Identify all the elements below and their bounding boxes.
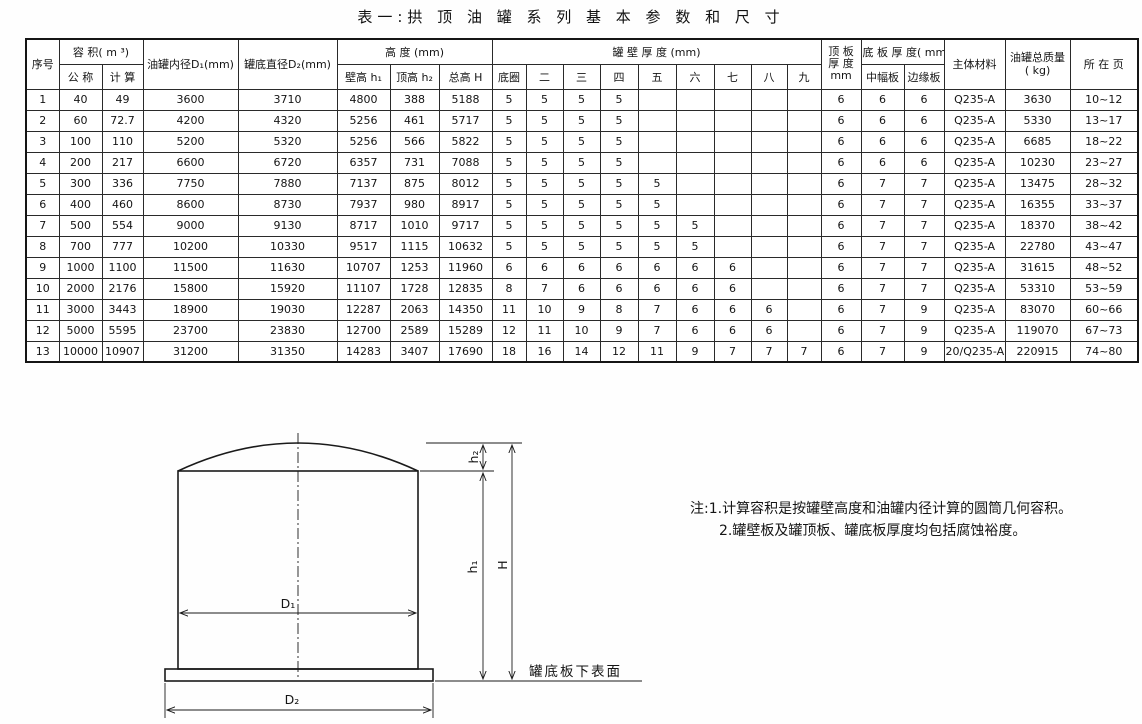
table-cell: Q235-A [944,236,1005,257]
h-total-label: H [495,560,510,569]
table-cell: 7880 [238,173,337,194]
table-cell [714,215,751,236]
table-cell: 10907 [102,341,143,362]
table-cell [787,215,821,236]
table-cell [638,152,676,173]
table-cell: 5 [492,131,526,152]
table-cell: 8 [492,278,526,299]
table-cell: 5 [600,173,638,194]
table-cell: 5 [492,215,526,236]
table-row: 1020002176158001592011107172812835876666… [26,278,1138,299]
table-cell: 5 [526,236,563,257]
table-cell [714,131,751,152]
table-cell: 3000 [59,299,102,320]
table-title: 表一:拱 顶 油 罐 系 列 基 本 参 数 和 尺 寸 [0,6,1142,27]
table-cell: Q235-A [944,320,1005,341]
table-cell: 7 [638,320,676,341]
table-cell [676,152,714,173]
parameters-table: 序号 容 积( m ³) 油罐内径D₁(mm) 罐底直径D₂(mm) 高 度 (… [25,38,1139,363]
table-cell: 9 [904,341,944,362]
table-cell: 40 [59,89,102,110]
table-cell: 7937 [337,194,390,215]
table-cell: 60~66 [1070,299,1138,320]
table-cell: 5 [563,110,600,131]
table-cell: 8730 [238,194,337,215]
document-page: 表一:拱 顶 油 罐 系 列 基 本 参 数 和 尺 寸 序号 容 积( m ³… [0,0,1142,724]
col-header-course-7: 七 [714,64,751,89]
table-cell: 5 [492,194,526,215]
table-header: 序号 容 积( m ³) 油罐内径D₁(mm) 罐底直径D₂(mm) 高 度 (… [26,39,1138,89]
table-cell: 875 [390,173,439,194]
table-cell: 11107 [337,278,390,299]
table-cell [787,152,821,173]
table-cell: 53310 [1005,278,1070,299]
table-cell: 5 [526,173,563,194]
table-cell: 1000 [59,257,102,278]
h1-label: h₁ [465,561,480,574]
table-cell: 5200 [143,131,238,152]
table-cell [787,194,821,215]
table-cell: 5 [526,89,563,110]
table-cell: 6 [26,194,59,215]
table-cell: 13475 [1005,173,1070,194]
table-cell: 6 [563,278,600,299]
table-cell [787,173,821,194]
table-body: 1404936003710480038851885555666Q235-A363… [26,89,1138,362]
table-cell [638,131,676,152]
table-cell: 400 [59,194,102,215]
col-header-course-bottom: 底圈 [492,64,526,89]
table-cell: 6 [714,257,751,278]
table-cell: Q235-A [944,110,1005,131]
table-cell: 5 [526,110,563,131]
table-cell: 16355 [1005,194,1070,215]
table-cell: 1010 [390,215,439,236]
table-cell: 6685 [1005,131,1070,152]
table-row: 6400460860087307937980891755555677Q235-A… [26,194,1138,215]
table-cell: 5 [600,236,638,257]
table-cell: 6 [821,215,861,236]
table-cell: 13 [26,341,59,362]
col-header-roof-height: 顶高 h₂ [390,64,439,89]
table-cell: 18900 [143,299,238,320]
table-cell [714,89,751,110]
table-cell: 100 [59,131,102,152]
table-cell: 6 [714,299,751,320]
col-header-nominal: 公 称 [59,64,102,89]
table-cell: 20/Q235-A [944,341,1005,362]
table-cell: 980 [390,194,439,215]
table-cell: 7 [861,341,904,362]
table-cell [714,173,751,194]
table-cell: 9 [563,299,600,320]
table-cell: 6357 [337,152,390,173]
table-cell: 6 [714,278,751,299]
table-cell: 6 [861,152,904,173]
table-cell [751,89,787,110]
table-cell: 5 [526,152,563,173]
table-cell: 6 [821,341,861,362]
table-cell: 777 [102,236,143,257]
table-cell: 7 [861,236,904,257]
table-cell: 10~12 [1070,89,1138,110]
table-cell: 5 [563,131,600,152]
table-cell: 6720 [238,152,337,173]
table-cell: 6 [638,278,676,299]
table-cell: 7 [904,215,944,236]
table-cell: 5 [600,131,638,152]
table-cell: 11 [492,299,526,320]
table-cell: 5717 [439,110,492,131]
table-cell: 2000 [59,278,102,299]
table-cell: 10 [26,278,59,299]
table-cell: 6 [526,257,563,278]
table-cell: 16 [526,341,563,362]
table-cell [787,257,821,278]
table-cell: 12287 [337,299,390,320]
table-cell: 5320 [238,131,337,152]
table-cell: 18 [492,341,526,362]
table-cell [751,173,787,194]
table-cell: 2176 [102,278,143,299]
table-cell: 8 [600,299,638,320]
col-header-course-4: 四 [600,64,638,89]
table-cell: 8 [26,236,59,257]
col-header-bottom-plate-group: 底 板 厚 度( mm [861,39,944,64]
table-cell: 5 [563,194,600,215]
col-header-total-height: 总高 H [439,64,492,89]
table-cell: 22780 [1005,236,1070,257]
table-cell: 53~59 [1070,278,1138,299]
table-cell: 12 [26,320,59,341]
table-cell: 6 [821,299,861,320]
col-header-course-6: 六 [676,64,714,89]
table-cell: 5595 [102,320,143,341]
table-cell: 566 [390,131,439,152]
table-row: 310011052005320525656658225555666Q235-A6… [26,131,1138,152]
note-line-1: 注:1.计算容积是按罐壁高度和油罐内径计算的圆筒几何容积。 [690,498,1072,520]
table-cell: Q235-A [944,257,1005,278]
table-cell: 38~42 [1070,215,1138,236]
table-cell: 6 [821,236,861,257]
table-cell: 1 [26,89,59,110]
table-cell: 23~27 [1070,152,1138,173]
table-cell: Q235-A [944,173,1005,194]
table-cell [751,236,787,257]
table-cell [751,257,787,278]
table-cell [714,236,751,257]
table-cell: 4320 [238,110,337,131]
col-header-course-8: 八 [751,64,787,89]
table-cell: 14350 [439,299,492,320]
table-cell: 6 [861,89,904,110]
table-cell: 33~37 [1070,194,1138,215]
header-row-1: 序号 容 积( m ³) 油罐内径D₁(mm) 罐底直径D₂(mm) 高 度 (… [26,39,1138,64]
table-cell: 5 [526,215,563,236]
table-cell: 9000 [143,215,238,236]
table-cell: 11500 [143,257,238,278]
table-cell [751,278,787,299]
table-cell: 5 [638,236,676,257]
col-header-course-5: 五 [638,64,676,89]
table-cell: 6 [904,131,944,152]
col-header-material: 主体材料 [944,39,1005,89]
col-header-height-group: 高 度 (mm) [337,39,492,64]
table-row: 1250005595237002383012700258915289121110… [26,320,1138,341]
table-cell: 15289 [439,320,492,341]
table-cell [751,215,787,236]
table-cell: 5 [492,236,526,257]
table-cell: 5 [492,89,526,110]
table-cell: 15920 [238,278,337,299]
table-cell [638,110,676,131]
table-cell: 5256 [337,110,390,131]
table-cell: 6 [821,89,861,110]
table-cell: 2 [26,110,59,131]
table-cell: 5 [526,194,563,215]
table-cell: 4 [26,152,59,173]
col-header-page: 所 在 页 [1070,39,1138,89]
table-cell: 6 [676,257,714,278]
col-header-wall-thickness-group: 罐 壁 厚 度 (mm) [492,39,821,64]
table-cell: 4800 [337,89,390,110]
table-cell: 6 [821,278,861,299]
col-header-bottom-diameter: 罐底直径D₂(mm) [238,39,337,89]
table-cell: 6 [676,278,714,299]
table-cell: 83070 [1005,299,1070,320]
table-cell: 9 [904,320,944,341]
table-cell: 5 [600,110,638,131]
table-cell: 43~47 [1070,236,1138,257]
table-cell: 5188 [439,89,492,110]
table-cell: 5330 [1005,110,1070,131]
table-row: 750055490009130871710109717555555677Q235… [26,215,1138,236]
table-cell: 67~73 [1070,320,1138,341]
table-cell: 10632 [439,236,492,257]
col-header-serial: 序号 [26,39,59,89]
notes: 注:1.计算容积是按罐壁高度和油罐内径计算的圆筒几何容积。 2.罐壁板及罐顶板、… [690,498,1072,542]
table-cell: 8717 [337,215,390,236]
table-cell: 6 [821,320,861,341]
table-cell: 31350 [238,341,337,362]
table-cell: 5000 [59,320,102,341]
table-cell: 388 [390,89,439,110]
table-cell: 5 [26,173,59,194]
table-cell [676,194,714,215]
table-cell: 3600 [143,89,238,110]
table-cell [676,173,714,194]
table-row: 1130003443189001903012287206314350111098… [26,299,1138,320]
table-cell: 5 [526,131,563,152]
table-cell: 2063 [390,299,439,320]
table-cell: 6 [563,257,600,278]
table-cell: 15800 [143,278,238,299]
col-header-calculated: 计 算 [102,64,143,89]
table-cell: 6 [821,173,861,194]
table-cell: 72.7 [102,110,143,131]
table-cell: 5256 [337,131,390,152]
table-cell: 7 [904,257,944,278]
col-header-course-2: 二 [526,64,563,89]
table-cell: 9 [26,257,59,278]
table-row: 420021766006720635773170885555666Q235-A1… [26,152,1138,173]
table-cell: 7088 [439,152,492,173]
table-cell [751,110,787,131]
table-cell: 7 [861,320,904,341]
table-cell: 7 [861,278,904,299]
table-cell: 500 [59,215,102,236]
table-row: 870077710200103309517111510632555555677Q… [26,236,1138,257]
table-cell [787,299,821,320]
table-cell: 9 [676,341,714,362]
table-cell: 7 [861,299,904,320]
table-cell: 6 [600,257,638,278]
table-cell [787,110,821,131]
table-cell: 10000 [59,341,102,362]
bottom-surface-label: 罐底板下表面 [529,664,622,680]
table-cell: 200 [59,152,102,173]
table-cell: 14283 [337,341,390,362]
table-cell: 6 [751,320,787,341]
table-cell: 7 [787,341,821,362]
table-cell: 5 [638,215,676,236]
table-cell: 6 [821,110,861,131]
table-cell: 14 [563,341,600,362]
table-cell: 5 [492,173,526,194]
table-cell: Q235-A [944,131,1005,152]
table-cell: 6 [821,257,861,278]
table-cell: Q235-A [944,152,1005,173]
table-cell: 6 [751,299,787,320]
table-cell: 6 [821,131,861,152]
table-cell: 6 [904,89,944,110]
table-cell: 6 [861,131,904,152]
table-cell: 1115 [390,236,439,257]
table-cell: 4200 [143,110,238,131]
table-cell: 7 [904,278,944,299]
table-cell: 5 [492,152,526,173]
table-cell: Q235-A [944,194,1005,215]
table-cell: 5 [600,194,638,215]
table-cell: 5 [676,236,714,257]
col-header-center-plate: 中幅板 [861,64,904,89]
total-mass-line1: 油罐总质量 [1007,51,1069,64]
table-cell: 6 [821,152,861,173]
table-cell: 9 [904,299,944,320]
tank-drawing: D₁ D₂ h₂ h₁ H 罐底板下表面 [140,425,720,724]
table-cell: 461 [390,110,439,131]
table-cell [676,131,714,152]
col-header-capacity-group: 容 积( m ³) [59,39,143,64]
table-cell: 5 [563,89,600,110]
table-cell: 5 [638,173,676,194]
table-cell: 10200 [143,236,238,257]
table-cell: 5 [563,215,600,236]
table-cell [714,152,751,173]
table-cell: 31615 [1005,257,1070,278]
col-header-course-3: 三 [563,64,600,89]
table-cell: 31200 [143,341,238,362]
table-cell: 12 [600,341,638,362]
table-cell: 336 [102,173,143,194]
table-cell: 5 [563,152,600,173]
table-cell: 5 [638,194,676,215]
table-row: 5300336775078807137875801255555677Q235-A… [26,173,1138,194]
table-cell [638,89,676,110]
table-cell: 8012 [439,173,492,194]
table-cell: 7 [714,341,751,362]
note-line-2: 2.罐壁板及罐顶板、罐底板厚度均包括腐蚀裕度。 [690,520,1072,542]
table-cell: 1728 [390,278,439,299]
table-cell: 7 [861,194,904,215]
table-cell: 5 [676,215,714,236]
table-cell: 5 [600,215,638,236]
table-cell [714,110,751,131]
table-cell: 3630 [1005,89,1070,110]
table-cell: 6 [904,110,944,131]
table-cell: 5 [492,110,526,131]
table-cell: 10 [526,299,563,320]
table-cell [676,89,714,110]
table-cell: 7 [904,236,944,257]
table-cell [787,131,821,152]
table-cell: 220915 [1005,341,1070,362]
table-cell: 3 [26,131,59,152]
table-cell: 6 [904,152,944,173]
table-row: 9100011001150011630107071253119606666666… [26,257,1138,278]
table-row: 26072.742004320525646157175555666Q235-A5… [26,110,1138,131]
table-cell: 5822 [439,131,492,152]
d2-label: D₂ [285,692,300,707]
table-cell [714,194,751,215]
table-cell: 7 [861,215,904,236]
table-cell: 7 [638,299,676,320]
table-cell: 60 [59,110,102,131]
table-cell: 6 [861,110,904,131]
table-cell: 6600 [143,152,238,173]
table-cell: 5 [600,152,638,173]
table-cell: 731 [390,152,439,173]
table-cell: 18~22 [1070,131,1138,152]
table-cell: 11630 [238,257,337,278]
table-cell: 119070 [1005,320,1070,341]
table-cell: 12 [492,320,526,341]
table-cell: 7 [861,173,904,194]
table-cell: 48~52 [1070,257,1138,278]
table-cell: 6 [492,257,526,278]
table-cell: 9517 [337,236,390,257]
table-cell: 217 [102,152,143,173]
table-cell: 7 [904,194,944,215]
table-cell: 23830 [238,320,337,341]
table-cell: 13~17 [1070,110,1138,131]
table-cell: 1100 [102,257,143,278]
table-cell: 8917 [439,194,492,215]
table-cell [787,320,821,341]
table-cell [751,131,787,152]
table-cell: 10330 [238,236,337,257]
table-cell: 1253 [390,257,439,278]
table-cell: 3407 [390,341,439,362]
roof-plate-line3: mm [823,70,860,82]
table-cell: 3710 [238,89,337,110]
table-cell: 6 [676,320,714,341]
h2-label: h₂ [466,451,481,464]
table-cell: 6 [714,320,751,341]
table-cell: 11 [526,320,563,341]
tank-base-plate [165,669,433,681]
table-cell: 554 [102,215,143,236]
